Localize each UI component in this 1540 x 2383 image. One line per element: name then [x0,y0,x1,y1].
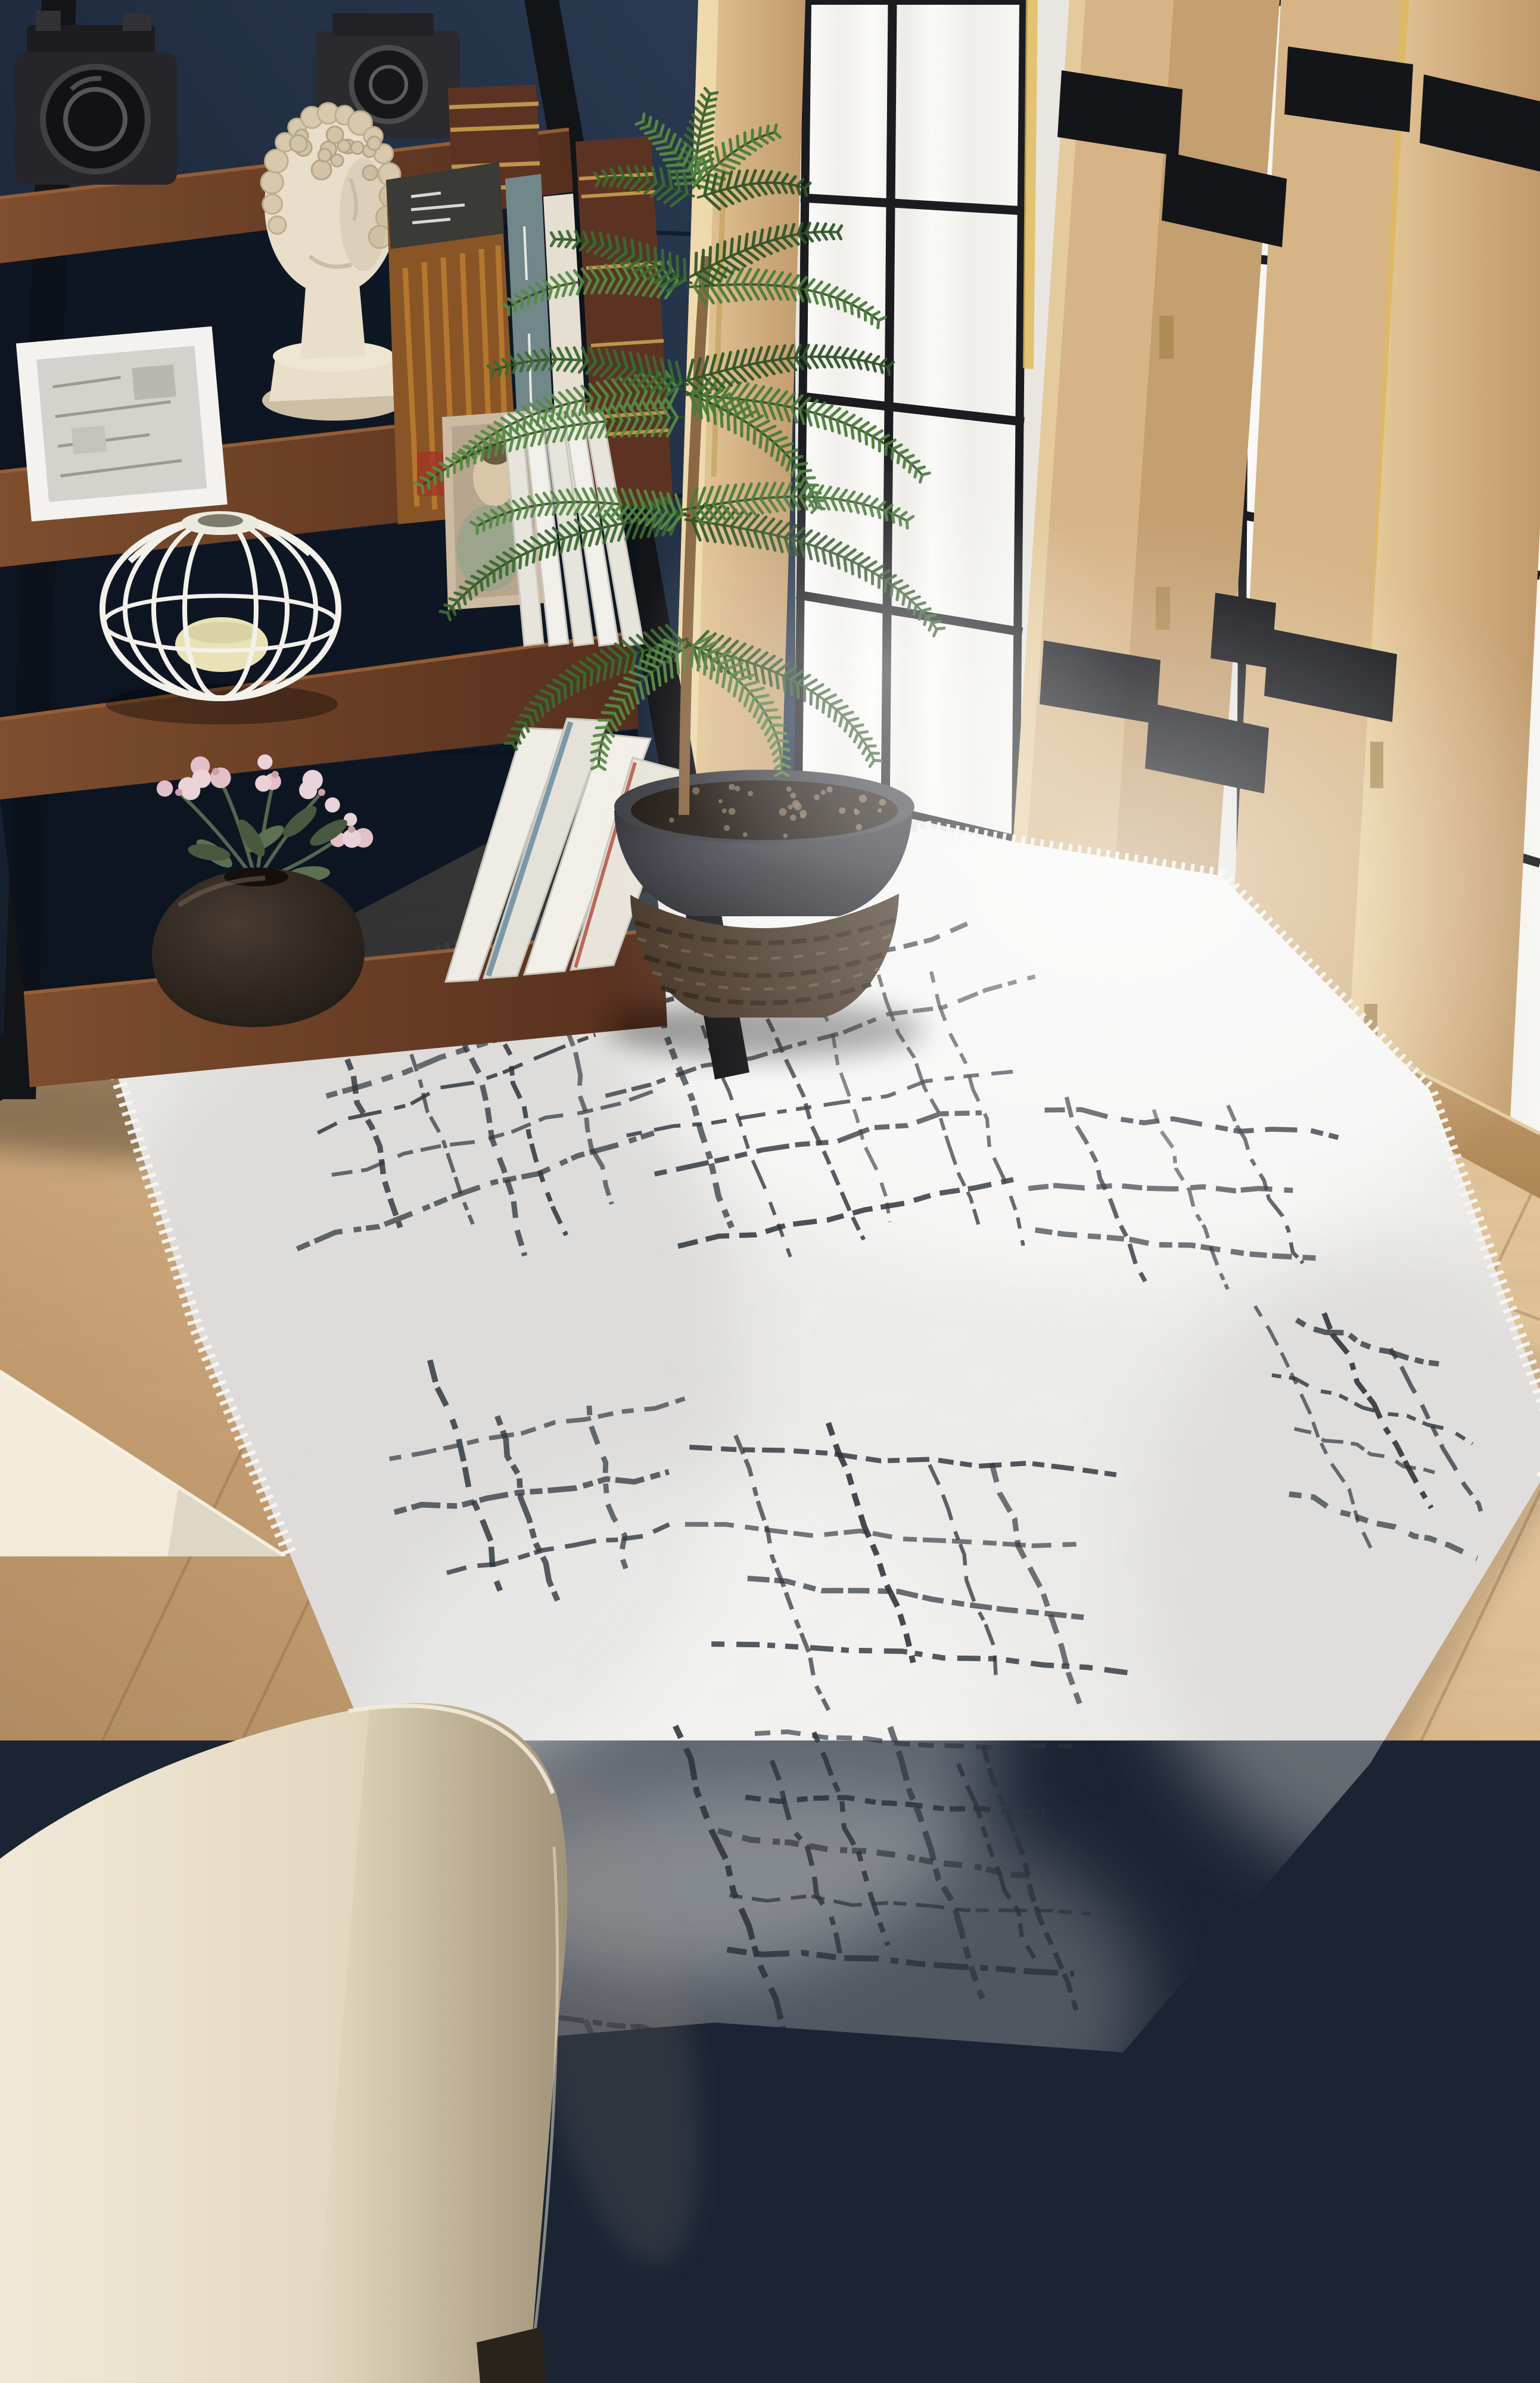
room-photo [0,0,1540,2383]
picture-frame [16,326,228,522]
scene-canvas [0,0,1540,2383]
